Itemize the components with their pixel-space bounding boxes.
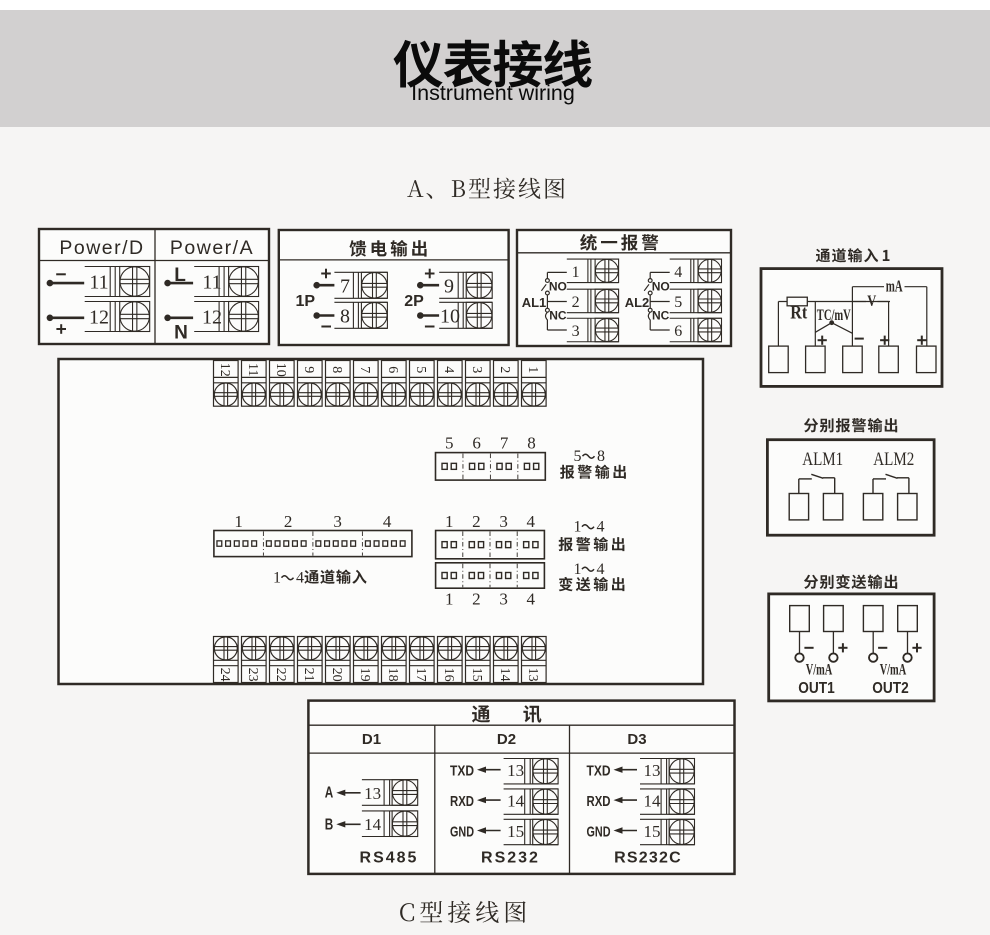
svg-text:20: 20: [329, 668, 344, 682]
svg-text:3: 3: [499, 590, 508, 609]
svg-text:ALM2: ALM2: [873, 449, 914, 470]
svg-text:7: 7: [500, 434, 509, 453]
svg-text:2P: 2P: [404, 293, 424, 310]
svg-text:GND: GND: [450, 824, 474, 841]
svg-text:4: 4: [527, 512, 536, 531]
svg-text:17: 17: [413, 668, 428, 682]
svg-text:L: L: [174, 265, 186, 286]
svg-text:9: 9: [444, 276, 454, 298]
svg-text:RXD: RXD: [450, 793, 474, 810]
svg-text:4: 4: [597, 561, 605, 578]
svg-text:18: 18: [385, 668, 400, 682]
svg-text:RS232: RS232: [481, 850, 540, 867]
svg-text:V/mA: V/mA: [806, 662, 833, 679]
svg-text:V: V: [867, 293, 876, 310]
svg-text:OUT2: OUT2: [872, 680, 909, 697]
svg-text:15: 15: [507, 822, 524, 841]
svg-text:8: 8: [527, 434, 536, 453]
svg-text:11: 11: [89, 272, 108, 294]
svg-text:Instrument wiring: Instrument wiring: [411, 81, 575, 105]
svg-text:12: 12: [202, 307, 222, 329]
svg-text:NC: NC: [549, 309, 567, 323]
svg-text:6: 6: [385, 366, 400, 373]
svg-text:3: 3: [333, 512, 342, 531]
svg-text:12: 12: [89, 307, 109, 329]
svg-text:6: 6: [472, 434, 481, 453]
svg-text:10: 10: [440, 306, 460, 328]
svg-text:OUT1: OUT1: [798, 680, 835, 697]
svg-text:RS232C: RS232C: [614, 850, 682, 867]
svg-text:3: 3: [469, 366, 484, 373]
svg-text:14: 14: [364, 815, 382, 834]
svg-text:14: 14: [497, 668, 512, 682]
svg-text:AL1: AL1: [522, 295, 547, 310]
svg-text:2: 2: [472, 590, 481, 609]
svg-text:7: 7: [340, 276, 350, 298]
svg-text:1P: 1P: [296, 293, 316, 310]
svg-text:16: 16: [441, 668, 456, 682]
svg-text:mA: mA: [886, 277, 903, 296]
svg-text:4: 4: [674, 264, 682, 281]
svg-text:19: 19: [357, 668, 372, 682]
svg-text:2: 2: [472, 512, 481, 531]
svg-text:Rt: Rt: [790, 303, 808, 324]
svg-text:4: 4: [441, 366, 456, 373]
svg-text:Power/A: Power/A: [170, 237, 254, 259]
svg-text:4: 4: [296, 570, 304, 587]
svg-text:1: 1: [572, 264, 580, 281]
svg-text:NO: NO: [652, 280, 670, 294]
svg-text:1: 1: [234, 512, 243, 531]
svg-text:TXD: TXD: [450, 763, 474, 780]
svg-text:D2: D2: [497, 731, 516, 748]
svg-text:10: 10: [273, 363, 288, 377]
svg-text:14: 14: [644, 792, 662, 811]
svg-text:11: 11: [245, 363, 260, 376]
svg-text:RXD: RXD: [587, 793, 611, 810]
svg-text:15: 15: [469, 668, 484, 682]
svg-text:13: 13: [364, 784, 381, 803]
svg-text:1: 1: [574, 519, 582, 536]
svg-text:D1: D1: [362, 731, 381, 748]
svg-text:4: 4: [527, 590, 536, 609]
svg-text:3: 3: [572, 323, 580, 340]
svg-text:4: 4: [597, 519, 605, 536]
svg-text:9: 9: [301, 366, 316, 373]
svg-text:8: 8: [597, 448, 605, 465]
svg-text:1: 1: [445, 512, 454, 531]
svg-text:1: 1: [445, 590, 454, 609]
svg-text:13: 13: [507, 761, 524, 780]
svg-text:2: 2: [284, 512, 293, 531]
svg-text:14: 14: [507, 792, 525, 811]
svg-text:5: 5: [674, 294, 682, 311]
svg-text:TXD: TXD: [587, 763, 611, 780]
svg-text:7: 7: [357, 366, 372, 373]
svg-text:ALM1: ALM1: [802, 449, 843, 470]
svg-text:13: 13: [644, 761, 661, 780]
svg-text:24: 24: [217, 668, 232, 682]
svg-text:11: 11: [202, 272, 221, 294]
svg-text:AL2: AL2: [625, 295, 650, 310]
svg-text:NC: NC: [652, 309, 670, 323]
svg-text:6: 6: [674, 323, 682, 340]
svg-text:8: 8: [329, 366, 344, 373]
svg-text:1: 1: [525, 366, 540, 373]
svg-text:12: 12: [217, 363, 232, 377]
svg-text:1: 1: [273, 570, 281, 587]
svg-text:D3: D3: [627, 731, 646, 748]
svg-text:13: 13: [525, 668, 540, 682]
svg-text:2: 2: [572, 294, 580, 311]
svg-text:23: 23: [245, 668, 260, 682]
svg-text:8: 8: [340, 306, 350, 328]
svg-text:N: N: [174, 323, 188, 344]
svg-text:RS485: RS485: [360, 850, 419, 867]
svg-text:NO: NO: [549, 280, 567, 294]
svg-text:3: 3: [499, 512, 508, 531]
svg-text:21: 21: [301, 668, 316, 682]
svg-text:5: 5: [413, 366, 428, 373]
svg-text:4: 4: [383, 512, 392, 531]
svg-text:V/mA: V/mA: [880, 662, 907, 679]
svg-text:5: 5: [445, 434, 454, 453]
svg-text:A: A: [325, 785, 334, 802]
svg-text:1: 1: [574, 561, 582, 578]
svg-text:B: B: [325, 817, 334, 834]
svg-text:GND: GND: [587, 824, 611, 841]
svg-text:Power/D: Power/D: [59, 237, 144, 259]
svg-text:2: 2: [497, 366, 512, 373]
svg-text:TC/mV: TC/mV: [817, 307, 851, 324]
svg-text:22: 22: [273, 668, 288, 682]
svg-text:15: 15: [644, 822, 661, 841]
svg-text:5: 5: [574, 448, 582, 465]
